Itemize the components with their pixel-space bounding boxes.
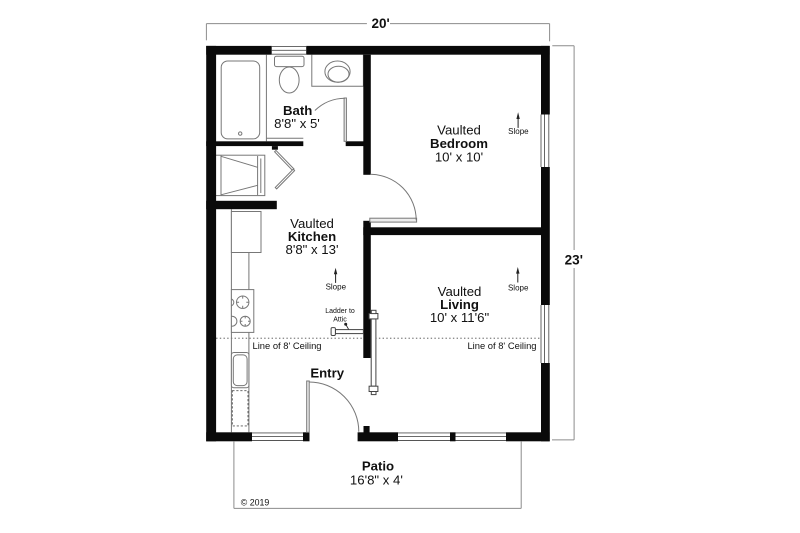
svg-text:© 2019: © 2019: [241, 498, 270, 508]
svg-text:16'8" x 4': 16'8" x 4': [350, 473, 403, 488]
svg-text:10' x 11'6": 10' x 11'6": [430, 310, 490, 325]
svg-text:Entry: Entry: [310, 365, 344, 380]
svg-text:8'8" x 13': 8'8" x 13': [286, 242, 339, 257]
svg-text:8'8" x 5': 8'8" x 5': [274, 116, 320, 131]
svg-text:10' x 10': 10' x 10': [435, 149, 483, 164]
svg-text:23': 23': [565, 252, 583, 267]
svg-text:Attic: Attic: [333, 316, 347, 323]
svg-text:Line of 8' Ceiling: Line of 8' Ceiling: [253, 340, 322, 351]
svg-text:20': 20': [371, 16, 389, 31]
svg-text:Slope: Slope: [508, 127, 529, 136]
svg-text:Line of 8' Ceiling: Line of 8' Ceiling: [467, 340, 536, 351]
svg-text:Patio: Patio: [362, 459, 394, 474]
svg-text:Slope: Slope: [326, 282, 347, 291]
svg-text:Slope: Slope: [508, 283, 529, 292]
svg-text:Ladder to: Ladder to: [325, 308, 355, 315]
